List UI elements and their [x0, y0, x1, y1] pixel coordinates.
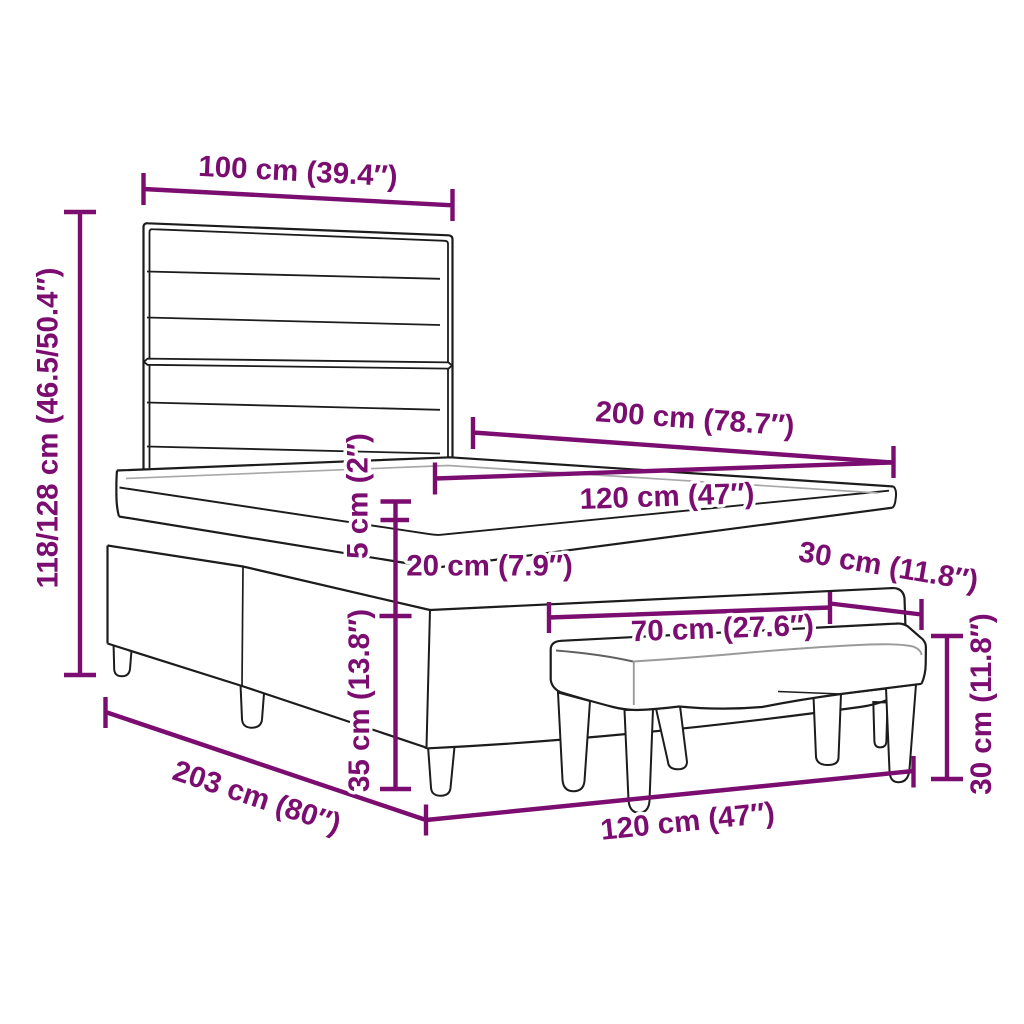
svg-text:30 cm (11.8″): 30 cm (11.8″) — [965, 613, 998, 794]
svg-text:35 cm (13.8″): 35 cm (13.8″) — [343, 609, 376, 792]
svg-text:5 cm (2″): 5 cm (2″) — [342, 433, 375, 559]
svg-text:118/128 cm (46.5/50.4″): 118/128 cm (46.5/50.4″) — [32, 268, 65, 589]
svg-text:120 cm (47″): 120 cm (47″) — [579, 477, 755, 516]
svg-text:70 cm (27.6″): 70 cm (27.6″) — [630, 609, 814, 648]
svg-text:20 cm (7.9″): 20 cm (7.9″) — [406, 550, 573, 583]
